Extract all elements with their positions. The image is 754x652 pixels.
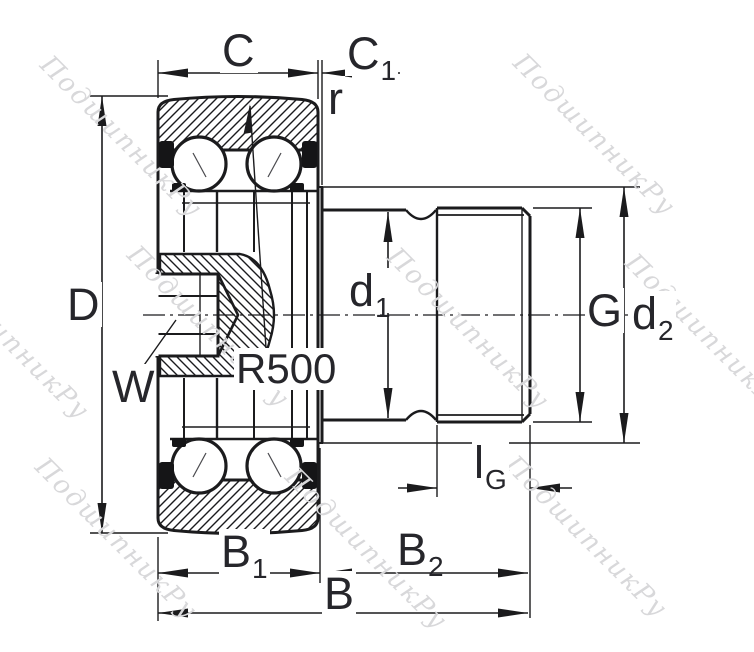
label-b: B: [322, 571, 356, 616]
label-b1: B1: [219, 529, 270, 574]
label-c1: C1: [345, 31, 398, 76]
label-d-outer: D: [65, 282, 102, 327]
label-r500: R500: [234, 348, 338, 390]
label-g: G: [585, 288, 624, 333]
label-lg: lG: [472, 440, 509, 485]
label-r: r: [326, 76, 345, 121]
label-b2: B2: [395, 527, 446, 572]
label-w: W: [110, 364, 156, 409]
label-c: C: [220, 28, 258, 73]
bearing-drawing-canvas: ПодшипникРуПодшипникРуПодшипникРуПодшипн…: [0, 0, 754, 652]
label-d2: d2: [630, 291, 676, 336]
label-d1: d1: [347, 268, 393, 313]
